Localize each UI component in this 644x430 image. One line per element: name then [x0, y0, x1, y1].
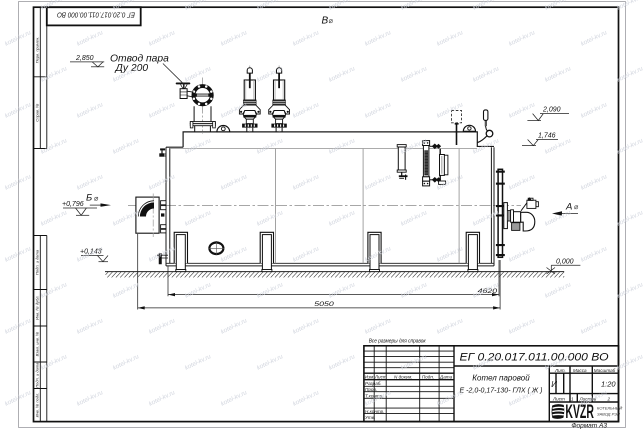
svg-text:В: В — [322, 15, 329, 26]
svg-text:Инв. № подл.: Инв. № подл. — [35, 393, 40, 418]
svg-text:Дата: Дата — [439, 374, 453, 379]
svg-text:KVZR: KVZR — [565, 402, 594, 423]
svg-text:5050: 5050 — [314, 301, 334, 308]
svg-text:2,850: 2,850 — [75, 55, 94, 62]
svg-text:Перв. примен.: Перв. примен. — [35, 37, 40, 64]
svg-text:Масса: Масса — [573, 368, 587, 373]
svg-text:1: 1 — [571, 397, 574, 402]
svg-text:Подп.: Подп. — [422, 374, 434, 379]
svg-text:И: И — [551, 380, 557, 389]
svg-text:КОТЕЛЬНЫЙ: КОТЕЛЬНЫЙ — [597, 406, 622, 411]
svg-text:2: 2 — [607, 397, 611, 402]
svg-text:Разраб.: Разраб. — [365, 381, 382, 386]
svg-text:Пров.: Пров. — [365, 387, 377, 392]
svg-text:Подп. и дата: Подп. и дата — [35, 249, 40, 275]
svg-text:Инв. № дубл.: Инв. № дубл. — [35, 295, 40, 320]
svg-text:Взам. инв. №: Взам. инв. № — [35, 331, 40, 356]
svg-text:Формат А3: Формат А3 — [571, 423, 607, 430]
svg-text:Масштаб: Масштаб — [594, 368, 616, 373]
svg-text:+0,796: +0,796 — [62, 201, 84, 208]
svg-text:1,746: 1,746 — [538, 133, 556, 140]
svg-text:Н.контр.: Н.контр. — [365, 409, 384, 414]
svg-text:Б: Б — [86, 193, 92, 204]
svg-text:N докум.: N докум. — [394, 374, 413, 379]
svg-text:Лист: Лист — [374, 374, 387, 379]
svg-text:ЗАВОД РЭП: ЗАВОД РЭП — [597, 412, 620, 417]
svg-text:ЕГ 0.20.017.011.00.000 ВО: ЕГ 0.20.017.011.00.000 ВО — [57, 11, 135, 18]
svg-text:Утв.: Утв. — [365, 415, 375, 420]
svg-text:Котел паровой: Котел паровой — [472, 374, 530, 383]
svg-text:Лит.: Лит. — [554, 368, 566, 373]
svg-text:Все размеры для справок: Все размеры для справок — [369, 339, 426, 345]
svg-text:2,090: 2,090 — [542, 107, 561, 114]
svg-text:1:20: 1:20 — [601, 380, 616, 389]
svg-text:Изм.: Изм. — [365, 374, 375, 379]
svg-text:0,000: 0,000 — [556, 259, 574, 266]
svg-text:Лист: Лист — [552, 397, 565, 402]
svg-text:Справ. №: Справ. № — [35, 103, 40, 122]
